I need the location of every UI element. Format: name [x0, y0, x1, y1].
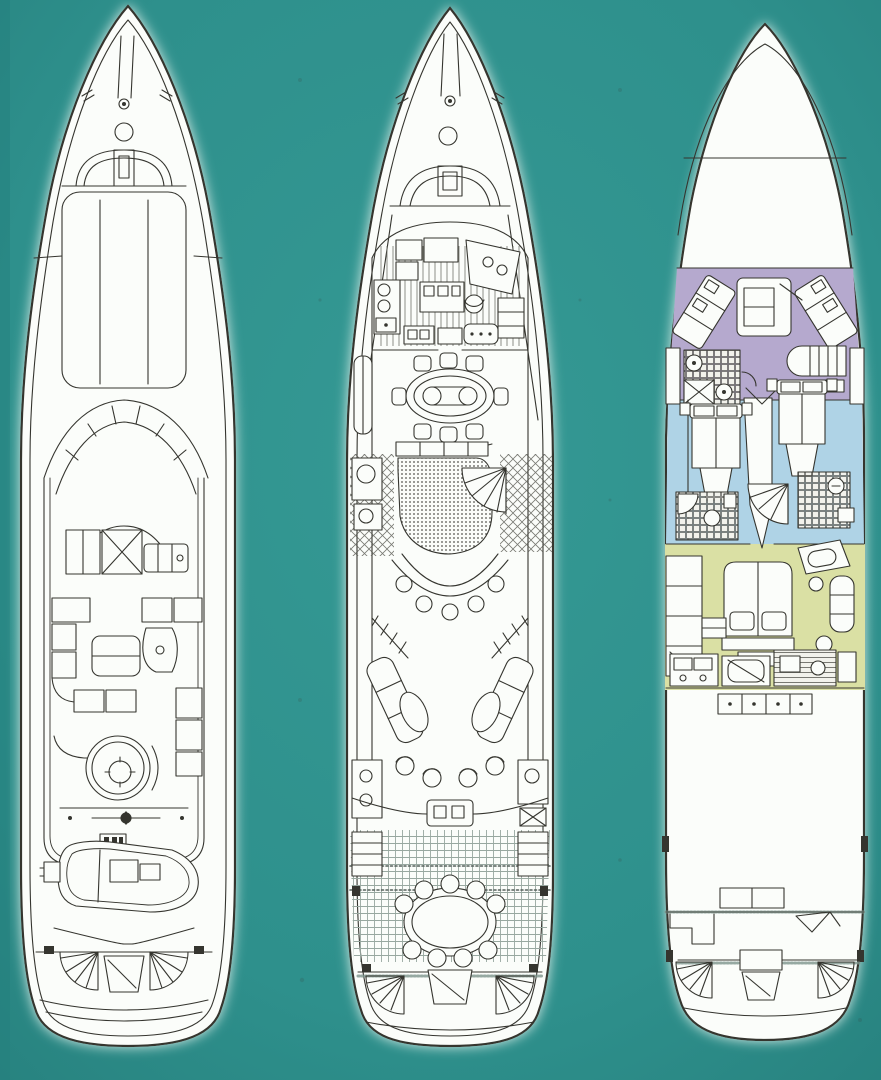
- scanned-deck-plan-page: [0, 0, 881, 1080]
- deck-plans-figure: [0, 0, 881, 1080]
- aft-deck: [350, 830, 550, 967]
- scan-edge-shade: [0, 0, 10, 1080]
